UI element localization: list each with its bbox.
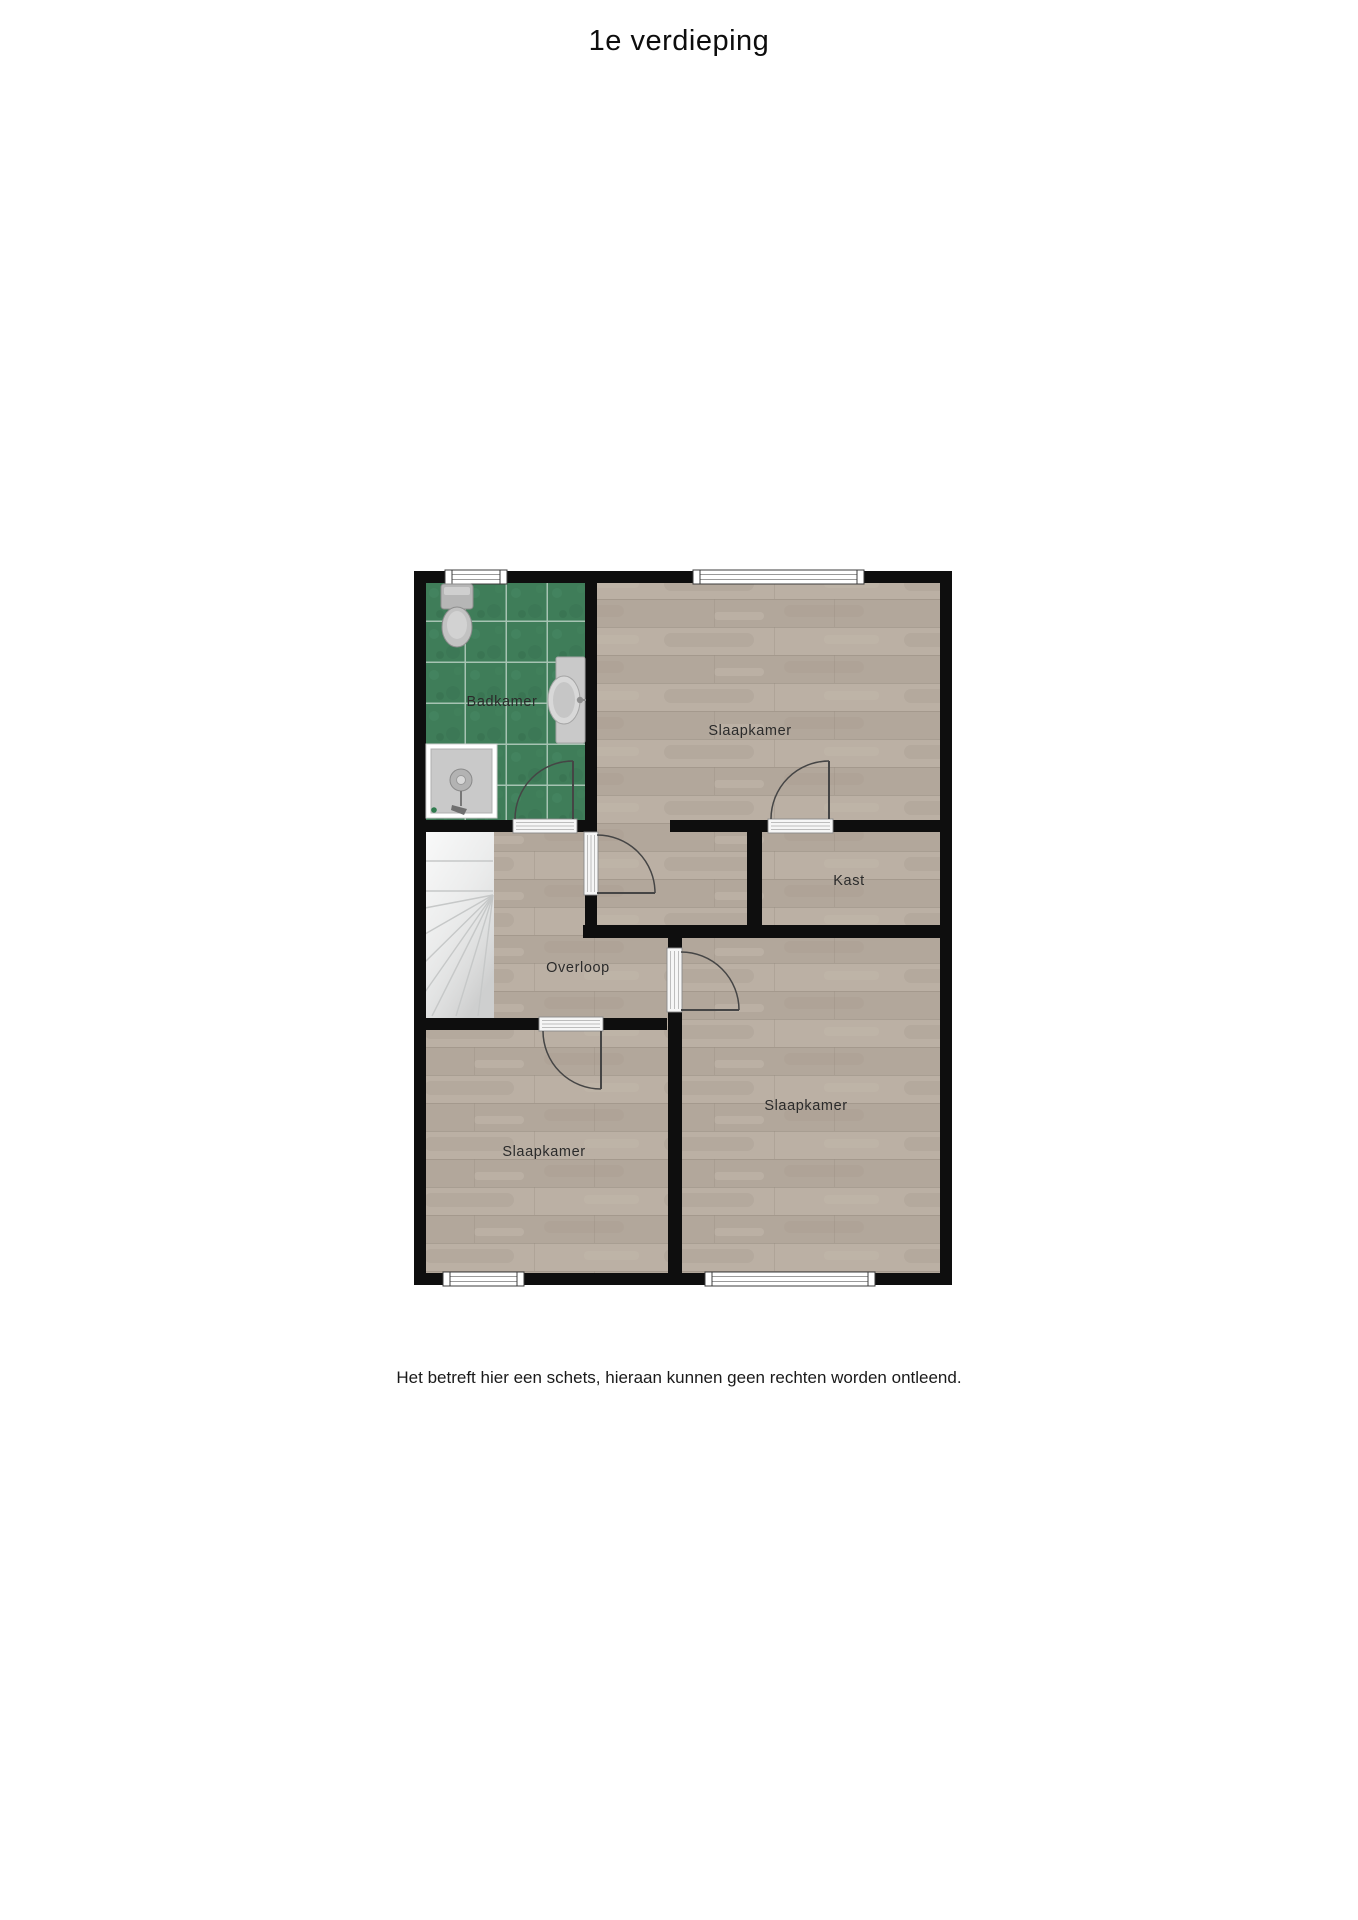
wall-kast-south [583, 925, 942, 938]
shower-icon [426, 744, 497, 818]
floorplan-page: 1e verdieping [0, 0, 1358, 1920]
room-label-slaapkamer-noord: Slaapkamer [708, 723, 791, 739]
room-label-overloop: Overloop [546, 960, 610, 976]
wall-outer-left [414, 571, 426, 1285]
window-badkamer [445, 570, 507, 584]
room-label-slaapkamer-rechts: Slaapkamer [764, 1098, 847, 1114]
window-slaapkamer-noord [693, 570, 864, 584]
wall-kast-west [747, 832, 762, 925]
toilet-icon [441, 584, 473, 647]
floorplan-drawing: Badkamer Slaapkamer Kast Overloop Slaapk… [0, 0, 1358, 1920]
room-label-badkamer: Badkamer [467, 694, 538, 710]
stairs-icon [425, 832, 494, 1018]
door-slaapkamer-links [539, 1017, 603, 1031]
door-badkamer [513, 819, 577, 833]
window-slaapkamer-links [443, 1272, 524, 1286]
wall-badkamer-east [585, 583, 597, 820]
disclaimer-text: Het betreft hier een schets, hieraan kun… [0, 1368, 1358, 1388]
room-label-slaapkamer-links: Slaapkamer [502, 1144, 585, 1160]
door-slaapkamer-rechts [667, 948, 682, 1012]
door-kast [768, 819, 833, 833]
window-slaapkamer-rechts [705, 1272, 875, 1286]
door-slaapkamer-noord [584, 832, 598, 895]
room-label-kast: Kast [833, 873, 864, 889]
